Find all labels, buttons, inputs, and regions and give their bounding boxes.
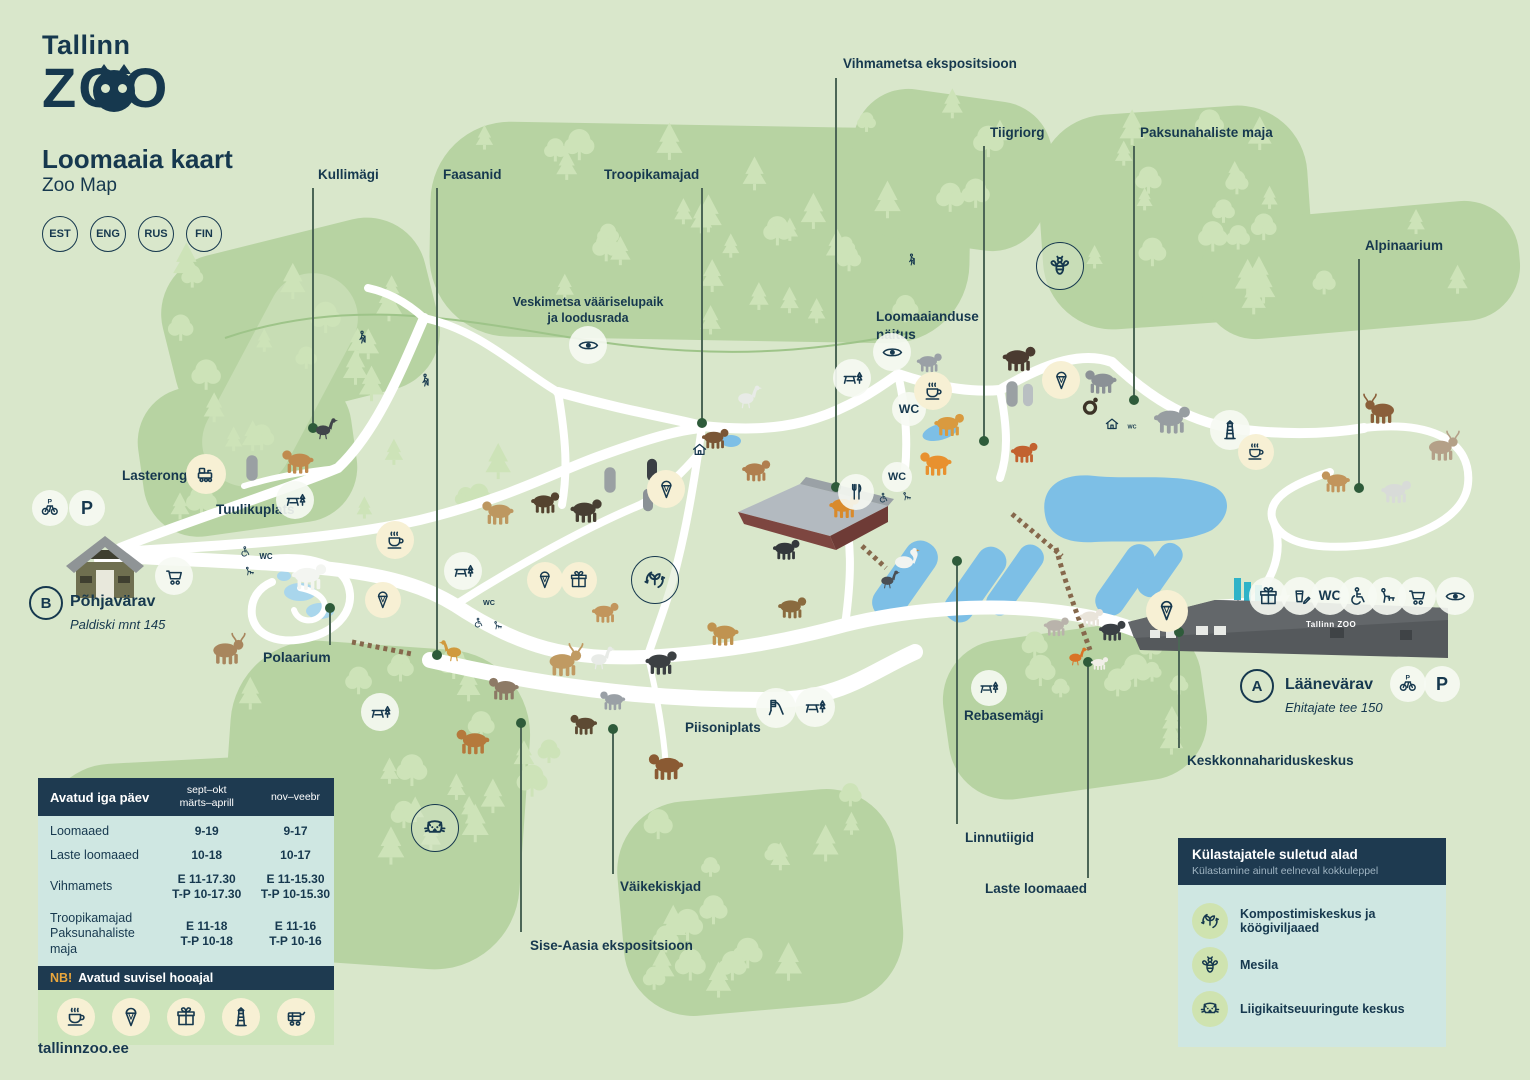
gift-shop-icon	[561, 562, 597, 598]
hours-row-time: E 11-15.30 T-P 10-15.30	[257, 872, 334, 903]
map-label-polaarium: Polaarium	[263, 648, 331, 666]
callout-label-tiigriorg: Tiigriorg	[990, 124, 1045, 142]
hours-header: Avatud iga päev sept–okt märts–aprill no…	[38, 778, 334, 816]
parking-icon: P	[69, 490, 105, 526]
wc-text: WC	[259, 553, 272, 561]
hours-row-label: Laste loomaaed	[38, 848, 156, 864]
website-link[interactable]: tallinnzoo.ee	[38, 1040, 129, 1057]
ice-cream-kiosk-icon	[647, 470, 685, 508]
bike-parking-icon: P	[1390, 666, 1426, 702]
legend-header: Külastajatele suletud alad Külastamine a…	[1178, 838, 1446, 885]
callout-label-paksunahaliste-maja: Paksunahaliste maja	[1140, 124, 1273, 142]
viewpoint-icon	[873, 333, 911, 371]
baby-care-icon	[897, 487, 918, 508]
callout-line-vihmametsa-ekspositsioon	[835, 78, 837, 487]
animal-macaque-statue-icon	[602, 466, 619, 494]
gate-address: Ehitajate tee 150	[1285, 700, 1383, 715]
animal-rooster-icon	[1066, 643, 1088, 666]
callout-line-troopikamajad	[701, 188, 703, 423]
gate-name: Läänevärav	[1285, 676, 1373, 694]
callout-label-linnutiigid: Linnutiigid	[965, 829, 1034, 847]
animal-eagle-icon	[312, 413, 338, 440]
compost-centre-icon	[631, 556, 679, 604]
train-ride-icon	[186, 454, 226, 494]
animal-cow-icon	[1096, 617, 1130, 643]
animal-markhor-icon	[1423, 429, 1463, 464]
hours-header-title: Avatud iga päev	[38, 790, 156, 805]
picnic-icon	[361, 693, 399, 731]
hours-row-time: 9-19	[156, 824, 257, 840]
wheelchair-access-icon	[874, 488, 895, 509]
callout-label-faasanid: Faasanid	[443, 166, 502, 184]
language-button-eng[interactable]: ENG	[90, 216, 126, 252]
hours-note: NB!Avatud suvisel hooajal	[38, 966, 334, 990]
closed-areas-legend: Külastajatele suletud alad Külastamine a…	[1178, 838, 1446, 1047]
hours-row-label: Loomaaed	[38, 824, 156, 840]
hours-note-prefix: NB!	[50, 971, 72, 985]
animal-white-crane-icon	[587, 641, 615, 670]
hours-header-col2: nov–veebr	[257, 791, 334, 804]
animal-sheep-icon	[1041, 614, 1073, 639]
animal-red-deer-icon	[543, 641, 587, 679]
animal-reindeer-icon	[207, 631, 249, 667]
callout-label-v-ikekiskjad: Väikekiskjad	[620, 878, 701, 896]
gate-address: Paldiski mnt 145	[70, 617, 165, 632]
cafe-icon	[914, 372, 952, 410]
wc-icon: WC	[479, 593, 499, 613]
picnic-icon	[971, 670, 1007, 706]
coffee-icon	[57, 998, 95, 1036]
callout-dot-paksunahaliste-maja	[1129, 395, 1139, 405]
hours-row-time: 10-17	[257, 848, 334, 864]
animal-horse-icon	[702, 618, 742, 649]
picnic-icon	[276, 481, 314, 519]
opening-hours-panel: Avatud iga päev sept–okt märts–aprill no…	[38, 778, 334, 1045]
legend-items: Kompostimiskeskus ja köögiviljaaedMesila…	[1178, 885, 1446, 1047]
gate-letter-B: B	[29, 586, 63, 620]
legend-item-liigikaitseuuringute-keskus: Liigikaitseuuringute keskus	[1192, 991, 1432, 1027]
animal-ibex-icon	[1360, 392, 1400, 427]
callout-line-tiigriorg	[983, 146, 985, 441]
animal-musk-ox-2-icon	[999, 342, 1041, 374]
callout-label-keskkonnahariduskeskus: Keskkonnahariduskeskus	[1187, 752, 1354, 770]
animal-binturong-icon	[770, 536, 804, 562]
hours-rows: Loomaaed9-199-17Laste loomaaed10-1810-17…	[38, 816, 334, 965]
animal-german-shepherd-icon	[775, 593, 811, 621]
hiker-icon	[899, 247, 925, 273]
callout-dot-alpinaarium	[1354, 483, 1364, 493]
callout-line-faasanid	[436, 188, 438, 655]
gate-letter-A: A	[1240, 669, 1274, 703]
callout-dot-tiigriorg	[979, 436, 989, 446]
animal-raccoon-icon	[596, 688, 628, 713]
animal-crane-icon	[734, 380, 762, 409]
hours-row-label: Troopikamajad Paksunahaliste maja	[38, 911, 156, 958]
callout-line-linnutiigid	[956, 561, 958, 824]
shelter-house-icon	[1097, 409, 1127, 439]
language-button-fin[interactable]: FIN	[186, 216, 222, 252]
hours-header-col1: sept–okt märts–aprill	[156, 784, 257, 810]
callout-line-keskkonnahariduskeskus	[1178, 632, 1180, 748]
animal-goat-kid-icon	[1089, 655, 1111, 672]
viewpoint-icon	[1436, 577, 1474, 615]
ice-cream-kiosk-icon	[527, 562, 563, 598]
logo-zoo: ZOO	[42, 61, 169, 114]
animal-donkey-icon	[484, 673, 522, 702]
baby-care-icon	[239, 561, 261, 583]
animal-raccoon-2-icon	[914, 350, 946, 375]
wc-text: WC	[483, 599, 495, 606]
compost-icon	[1192, 903, 1228, 939]
legend-item-mesila: Mesila	[1192, 947, 1432, 983]
entrance-building-logo: Tallinn ZOO	[1306, 620, 1356, 629]
callout-dot-linnutiigid	[952, 556, 962, 566]
hours-row-vihmamets: VihmametsE 11-17.30 T-P 10-17.30E 11-15.…	[38, 868, 334, 907]
callout-line-kullim-gi	[312, 188, 314, 428]
hours-row-laste-loomaaed: Laste loomaaed10-1810-17	[38, 844, 334, 868]
wc-icon: WC	[1125, 421, 1140, 436]
hiker-icon	[411, 366, 439, 394]
callout-line-laste-loomaaed	[1087, 662, 1089, 878]
hours-row-troopikamajad: Troopikamajad Paksunahaliste majaE 11-18…	[38, 907, 334, 962]
viewpoint-icon	[569, 326, 607, 364]
gate-name: Põhjavärav	[70, 593, 155, 611]
summer-services-strip	[38, 990, 334, 1045]
legend-title: Külastajatele suletud alad	[1192, 847, 1432, 862]
animal-golden-pheasant-icon	[439, 635, 465, 662]
animal-dhole-icon	[1008, 439, 1042, 465]
callout-label-laste-loomaaed: Laste loomaaed	[985, 880, 1087, 898]
svg-text:P: P	[1406, 675, 1411, 682]
callout-label-troopikamajad: Troopikamajad	[604, 166, 699, 184]
cart-rental-icon	[1398, 577, 1436, 615]
animal-argali-icon	[1317, 467, 1353, 495]
parking-icon: P	[1424, 666, 1460, 702]
animal-rhino-icon	[1080, 366, 1120, 397]
callout-line-sise-aasia-ekspositsioon	[520, 723, 522, 932]
shelter-house-icon	[684, 434, 716, 466]
ice-cream-kiosk-icon	[1042, 361, 1080, 399]
animal-musk-ox-icon	[567, 495, 607, 526]
parking-text: P	[81, 499, 93, 517]
wheelchair-access-icon	[235, 541, 257, 563]
food-cart-icon	[277, 998, 315, 1036]
ice-cream-kiosk-icon	[1146, 590, 1188, 632]
animal-jaguar-icon	[931, 409, 969, 438]
animal-alpaca-icon	[739, 456, 775, 484]
logo: Tallinn ZOO	[42, 30, 169, 114]
animal-elephant-icon	[1150, 401, 1196, 436]
wheelchair-access-icon	[469, 613, 490, 634]
hours-note-text: Avatud suvisel hooajal	[78, 971, 213, 985]
callout-dot-v-ikekiskjad	[608, 724, 618, 734]
language-button-rus[interactable]: RUS	[138, 216, 174, 252]
svg-text:P: P	[48, 499, 53, 506]
hours-row-label: Vihmamets	[38, 879, 156, 895]
bike-parking-icon: P	[32, 490, 68, 526]
callout-dot-polaarium-line	[325, 603, 335, 613]
animal-owl-statues-icon	[1004, 380, 1021, 408]
page-subtitle: Zoo Map	[42, 175, 117, 197]
apiary-station-icon	[1036, 242, 1084, 290]
cart-rental-icon	[155, 557, 193, 595]
hours-row-time: E 11-16 T-P 10-16	[257, 919, 334, 950]
animal-polar-bear-icon	[288, 559, 332, 593]
legend-subtitle: Külastamine ainult eelneval kokkuleppel	[1192, 865, 1432, 877]
animal-bison-icon	[643, 749, 687, 783]
hiker-icon	[348, 323, 376, 351]
animal-kangaroo-icon	[589, 599, 623, 625]
animal-takin-icon	[477, 497, 517, 528]
animal-wild-boar-icon	[528, 488, 564, 516]
picnic-icon	[833, 359, 871, 397]
animal-snow-leopard-icon	[1378, 476, 1416, 505]
map-label-piisoniplats: Piisoniplats	[685, 719, 761, 737]
callout-label-alpinaarium: Alpinaarium	[1365, 237, 1443, 255]
callout-line-polaarium-line	[329, 608, 331, 645]
animal-owl-statues-2-icon	[1021, 383, 1036, 408]
zoo-map-page: { "brand": {"line1": "Tallinn", "line2":…	[0, 0, 1530, 1080]
cafe-icon	[1238, 434, 1274, 470]
legend-item-label: Kompostimiskeskus ja köögiviljaaed	[1240, 907, 1432, 935]
hours-row-time: 9-17	[257, 824, 334, 840]
baby-care-icon	[488, 616, 509, 637]
parking-text: P	[1436, 675, 1448, 693]
hours-row-time: E 11-18 T-P 10-18	[156, 919, 257, 950]
logo-animal-face-icon	[93, 70, 135, 112]
map-label-lasterong: Lasterong	[122, 467, 187, 485]
legend-item-label: Mesila	[1240, 958, 1278, 972]
animal-wolverine-icon	[566, 711, 600, 737]
animal-tiger-icon	[915, 448, 955, 479]
wc-text: WC	[1128, 425, 1137, 430]
callout-line-v-ikekiskjad	[612, 729, 614, 874]
hours-row-loomaaed: Loomaaed9-199-17	[38, 820, 334, 844]
lynx-face-icon	[1192, 991, 1228, 1027]
callout-label-vihmametsa-ekspositsioon: Vihmametsa ekspositsioon	[843, 55, 1017, 73]
wc-text: WC	[888, 472, 906, 483]
animal-yak-icon	[642, 647, 682, 678]
page-title: Loomaaia kaart	[42, 144, 233, 175]
language-button-est[interactable]: EST	[42, 216, 78, 252]
callout-label-sise-aasia-ekspositsioon: Sise-Aasia ekspositsioon	[530, 937, 693, 955]
map-label-veskimetsa-v-riselupaik-ja-loodusrada: Veskimetsa vääriselupaik ja loodusrada	[513, 294, 664, 327]
animal-owl-statue-icon	[244, 454, 261, 482]
tower-icon	[222, 998, 260, 1036]
wc-text: WC	[1319, 589, 1342, 603]
callout-dot-sise-aasia-ekspositsioon	[516, 718, 526, 728]
ice-cream-icon	[112, 998, 150, 1036]
callout-label-kullim-gi: Kullimägi	[318, 166, 379, 184]
playground-icon	[756, 688, 796, 728]
map-label-rebasem-gi: Rebasemägi	[964, 707, 1044, 725]
ice-cream-kiosk-icon	[365, 582, 401, 618]
language-switcher: ESTENGRUSFIN	[42, 216, 222, 252]
research-centre-icon	[411, 804, 459, 852]
bee-icon	[1192, 947, 1228, 983]
legend-item-kompostimiskeskus-ja-k-giviljaaed: Kompostimiskeskus ja köögiviljaaed	[1192, 903, 1432, 939]
picnic-icon	[444, 552, 482, 590]
callout-line-alpinaarium	[1358, 259, 1360, 488]
picnic-icon	[795, 687, 835, 727]
hours-row-time: E 11-17.30 T-P 10-17.30	[156, 872, 257, 903]
animal-camel-icon	[451, 725, 493, 757]
gift-icon	[167, 998, 205, 1036]
cafe-icon	[376, 521, 414, 559]
animal-lynx-icon	[277, 446, 317, 477]
hours-row-time: 10-18	[156, 848, 257, 864]
wc-text: WC	[899, 403, 919, 415]
restaurant-icon	[838, 474, 874, 510]
legend-item-label: Liigikaitseuuringute keskus	[1240, 1002, 1405, 1016]
callout-line-paksunahaliste-maja	[1133, 146, 1135, 400]
animal-duck-icon	[878, 566, 900, 589]
